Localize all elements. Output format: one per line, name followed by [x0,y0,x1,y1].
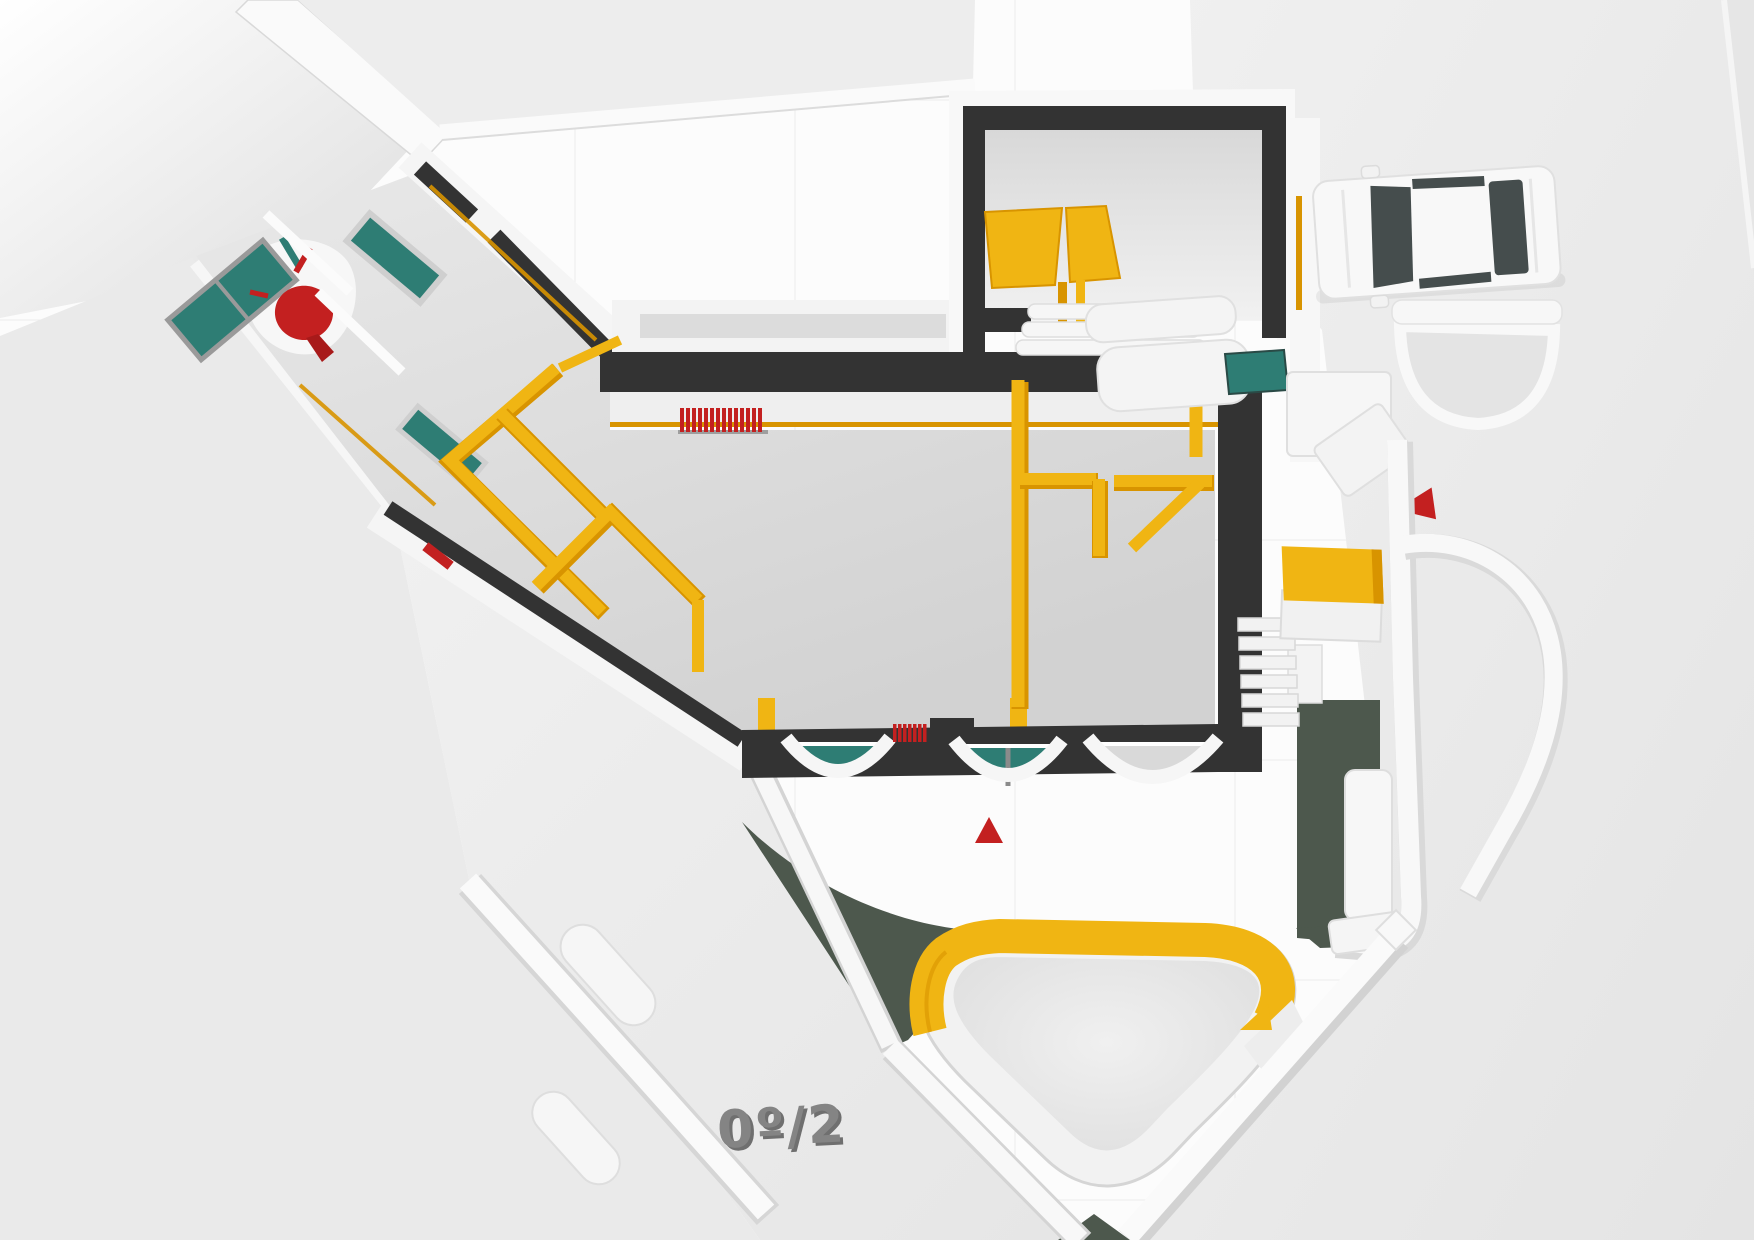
desk-panel [985,208,1062,288]
entry-doormat [1225,350,1288,394]
floorplan-render: 0º/2 0º/2 [0,0,1754,1240]
east-wall-dark [1218,370,1262,772]
floor-label-text: 0º/2 [716,1094,848,1161]
top-room-wall-right [1262,106,1286,338]
yellow-column [758,698,775,734]
stair-tread [1241,675,1297,688]
floor-label: 0º/2 0º/2 [716,1094,851,1164]
wall-block [930,718,974,744]
reception-desk-yellow [1278,546,1385,642]
stair-tread [1240,656,1296,669]
floorplan-canvas: 0º/2 0º/2 [0,0,1754,1240]
car-mirror [1361,165,1380,178]
stair-tread [1243,713,1299,726]
parking-wall-band [1392,300,1562,324]
car-rear-window [1488,179,1528,275]
stair-tread [1242,694,1298,707]
top-room-wall-top [963,106,1285,130]
clerestory-recess [640,314,946,338]
top-room-wall-bottom [963,308,1031,332]
garden-bench [1345,770,1392,920]
yellow-wall-trim [1296,196,1302,310]
car-mirror [1370,295,1389,308]
car-windshield [1366,183,1417,288]
radiator-fins [893,724,927,742]
desk-top [1280,546,1386,604]
